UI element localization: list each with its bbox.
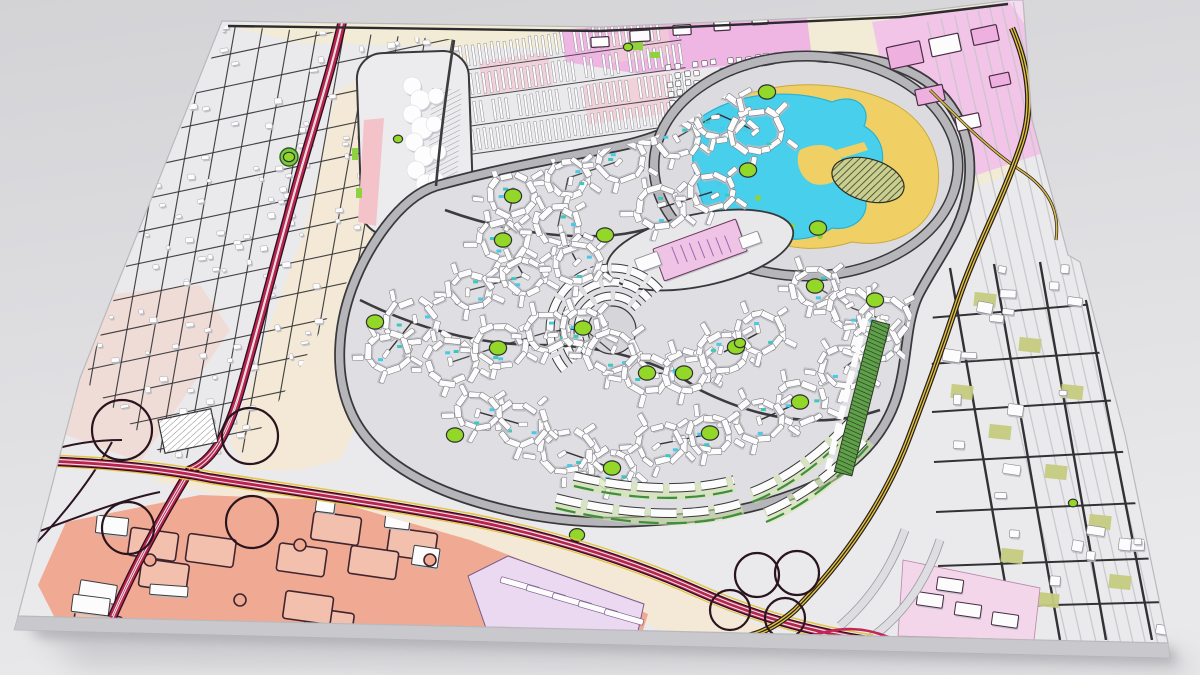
green-dot-park bbox=[867, 293, 883, 306]
pool-accent bbox=[705, 121, 710, 124]
pool-accent bbox=[851, 319, 856, 322]
pool-accent bbox=[754, 322, 759, 325]
map-3d-render bbox=[0, 0, 1200, 675]
pool-accent bbox=[575, 170, 580, 173]
pool-accent bbox=[573, 335, 578, 338]
green-dot-park bbox=[740, 163, 756, 176]
green-dot-park bbox=[597, 228, 613, 241]
pool-accent bbox=[666, 454, 671, 457]
green-dot-park bbox=[394, 136, 402, 143]
green-dot-park bbox=[490, 341, 506, 354]
pool-accent bbox=[663, 136, 668, 139]
green-dot-park bbox=[792, 395, 808, 408]
pool-accent bbox=[532, 431, 537, 434]
green-dot-park bbox=[284, 153, 294, 161]
pool-accent bbox=[587, 256, 592, 259]
pool-accent bbox=[716, 343, 721, 346]
pool-accent bbox=[515, 283, 520, 286]
pool-accent bbox=[635, 378, 640, 381]
pool-accent bbox=[611, 153, 616, 156]
green-verge bbox=[352, 148, 358, 160]
green-dot-park bbox=[367, 315, 383, 328]
pool-accent bbox=[704, 443, 709, 446]
pool-accent bbox=[758, 432, 763, 435]
pool-accent bbox=[682, 129, 687, 132]
pool-accent bbox=[511, 277, 516, 280]
pool-accent bbox=[571, 223, 576, 226]
pool-accent bbox=[561, 215, 566, 218]
green-dot-park bbox=[624, 44, 632, 51]
pool-accent bbox=[489, 408, 494, 411]
pool-accent bbox=[711, 349, 716, 352]
pool-accent bbox=[496, 250, 501, 253]
pool-accent bbox=[814, 399, 819, 402]
pool-accent bbox=[577, 275, 582, 278]
pool-accent bbox=[608, 158, 613, 161]
map-svg bbox=[0, 0, 1200, 675]
pool-accent bbox=[768, 341, 773, 344]
pool-accent bbox=[499, 195, 504, 198]
pool-accent bbox=[579, 182, 584, 185]
pool-accent bbox=[720, 126, 725, 129]
pool-accent bbox=[549, 322, 554, 325]
pool-accent bbox=[761, 408, 766, 411]
pool-accent bbox=[498, 357, 503, 360]
green-dot-park bbox=[447, 428, 463, 441]
pool-accent bbox=[445, 351, 450, 354]
pool-accent bbox=[397, 324, 402, 327]
green-dot-park bbox=[639, 366, 655, 379]
pool-accent bbox=[425, 315, 430, 318]
green-dot-park bbox=[735, 339, 745, 347]
green-dot-park bbox=[1069, 500, 1077, 507]
pool-accent bbox=[821, 277, 826, 280]
green-dot-park bbox=[676, 366, 692, 379]
pool-accent bbox=[743, 128, 748, 131]
pool-accent bbox=[658, 197, 663, 200]
pool-accent bbox=[673, 448, 678, 451]
pool-accent bbox=[659, 219, 664, 222]
green-dot-park bbox=[505, 189, 521, 202]
pool-accent bbox=[473, 280, 478, 283]
green-dot-park bbox=[702, 426, 718, 439]
pool-accent bbox=[621, 475, 626, 478]
green-verge bbox=[650, 52, 660, 58]
pool-accent bbox=[397, 345, 402, 348]
pool-accent bbox=[816, 296, 821, 299]
pool-accent bbox=[767, 142, 772, 145]
pool-accent bbox=[576, 461, 581, 464]
pool-accent bbox=[454, 350, 459, 353]
pool-accent bbox=[567, 464, 572, 467]
pool-accent bbox=[493, 356, 498, 359]
green-dot-park bbox=[807, 279, 823, 292]
green-dot-park bbox=[810, 221, 826, 234]
green-verge bbox=[356, 188, 362, 198]
pool-accent bbox=[717, 182, 722, 185]
pool-accent bbox=[608, 364, 613, 367]
green-dot-park bbox=[495, 233, 511, 246]
pool-accent bbox=[478, 298, 483, 301]
pool-accent bbox=[474, 421, 479, 424]
green-dot-park bbox=[759, 85, 775, 98]
pool-accent bbox=[833, 375, 838, 378]
pool-accent bbox=[378, 358, 383, 361]
green-dot-park bbox=[575, 321, 591, 334]
pool-accent bbox=[725, 194, 730, 197]
green-dot-park bbox=[604, 461, 620, 474]
pool-accent bbox=[786, 404, 791, 407]
